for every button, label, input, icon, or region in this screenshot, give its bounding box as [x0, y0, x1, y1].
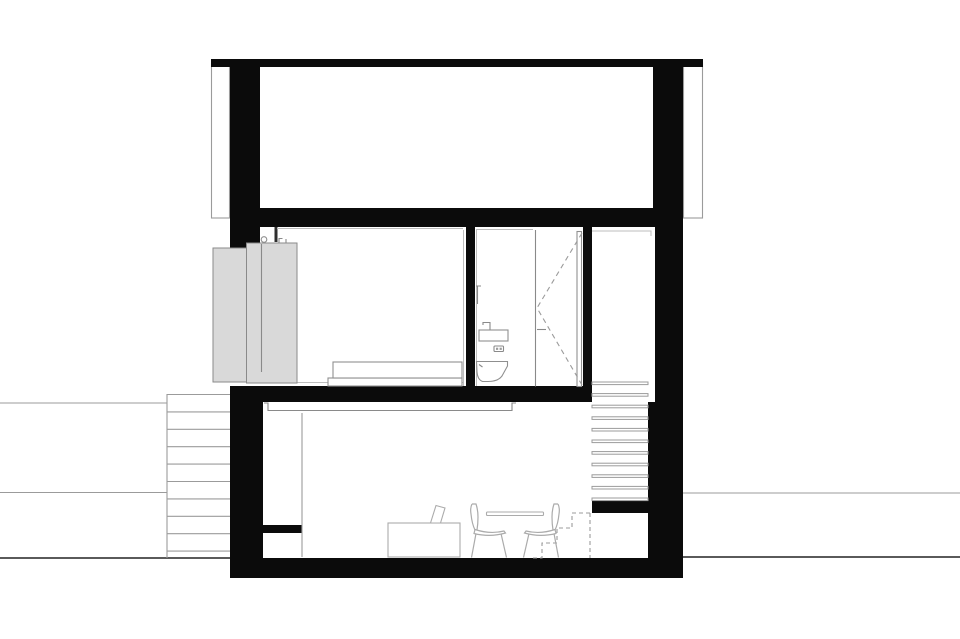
shutter-pulley-circle	[261, 237, 267, 243]
stair-landing-slab	[592, 500, 683, 513]
roof-slab	[211, 59, 703, 67]
paper-background	[0, 0, 960, 639]
interior-stair-tread	[592, 382, 648, 385]
ground-floor-slab	[230, 558, 683, 578]
table-top	[487, 512, 544, 516]
bathroom-level-slab	[230, 386, 592, 402]
left-parapet-panel	[212, 64, 230, 218]
sideboard-cabinet	[388, 523, 460, 557]
right-parapet-panel	[684, 63, 703, 218]
mid-floor-slab	[230, 208, 683, 227]
building-section-svg	[0, 0, 960, 639]
bed-mattress	[333, 362, 462, 378]
upper-floor-right-wall	[653, 59, 683, 227]
upper-floor-left-wall	[230, 59, 260, 227]
shutter-panel-inner	[247, 243, 298, 383]
interior-stair-tread	[592, 417, 648, 420]
door-leaf	[577, 232, 582, 387]
interior-stair-tread	[592, 486, 648, 489]
interior-stair-tread	[592, 440, 648, 443]
interior-stair-tread	[592, 498, 648, 501]
interior-stair-tread	[592, 463, 648, 466]
mid-floor-right-wall	[655, 227, 683, 402]
interior-stair-tread	[592, 475, 648, 478]
interior-stair-tread	[592, 428, 648, 431]
lower-right-wall	[648, 402, 683, 578]
partition-bath-stair	[583, 227, 592, 402]
interior-stair-tread	[592, 452, 648, 455]
shutter-panel-outer	[213, 248, 247, 382]
lower-left-wall	[230, 386, 263, 578]
window-seat-band	[263, 525, 302, 533]
bed-base	[328, 378, 462, 386]
section-drawing-canvas	[0, 0, 960, 639]
partition-bedroom-bath	[466, 227, 475, 388]
interior-stair-tread	[592, 405, 648, 408]
window-shutters	[213, 237, 297, 383]
washbasin	[479, 330, 508, 341]
window-head-bar	[275, 227, 278, 242]
interior-stair-tread	[592, 394, 648, 397]
